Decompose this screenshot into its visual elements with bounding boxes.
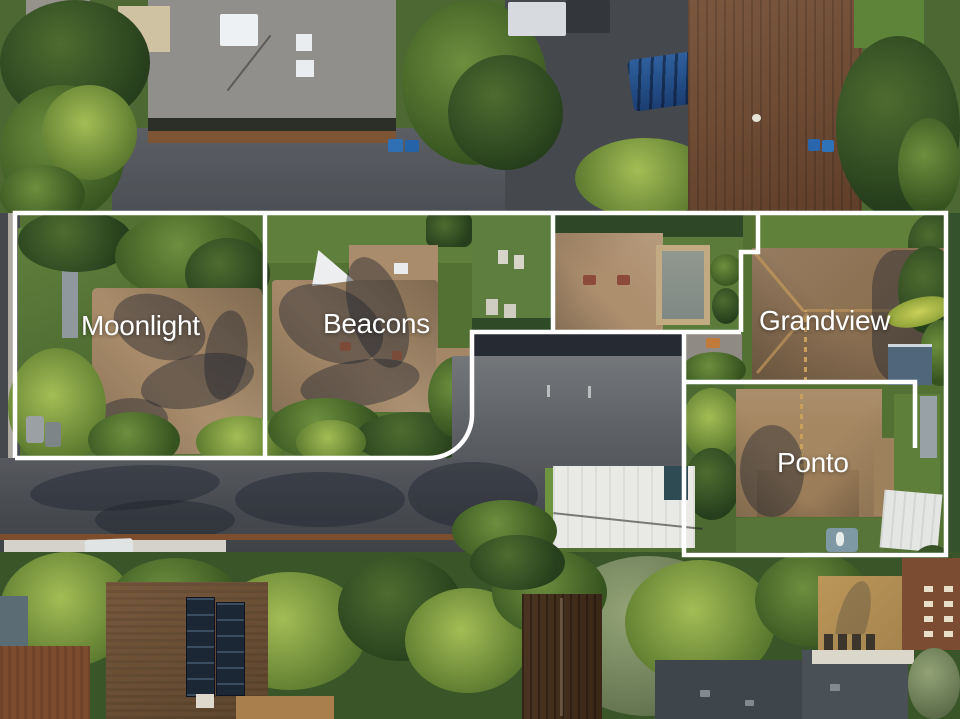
dark-van bbox=[566, 0, 610, 33]
solar-panel-array bbox=[186, 597, 215, 697]
building-windows bbox=[944, 586, 953, 644]
concrete-pad bbox=[486, 299, 498, 315]
lap-pool bbox=[662, 251, 704, 319]
roof-skylight bbox=[394, 263, 408, 274]
concrete-pad bbox=[498, 250, 508, 264]
parcel-label-moonlight: Moonlight bbox=[81, 310, 200, 342]
roof-vent bbox=[830, 684, 840, 691]
aerial-parcel-map: Moonlight Beacons Grandview Ponto bbox=[0, 0, 960, 719]
ponto-south-lawn bbox=[736, 518, 884, 554]
conifer-tree bbox=[908, 648, 960, 719]
patio-furniture bbox=[706, 338, 720, 348]
right-margin-trees bbox=[946, 213, 960, 555]
tree-canopy bbox=[448, 55, 563, 170]
dark-structure bbox=[664, 466, 688, 500]
blue-shed bbox=[888, 344, 932, 385]
recycle-bin bbox=[822, 140, 834, 152]
recycle-bin bbox=[808, 139, 820, 151]
white-truck bbox=[508, 2, 566, 36]
skylight bbox=[196, 694, 214, 708]
tree-canopy bbox=[682, 352, 746, 388]
tree-canopy bbox=[470, 535, 565, 590]
tree-canopy bbox=[898, 118, 960, 216]
storefront-windows bbox=[824, 634, 876, 651]
solar-panel-array bbox=[216, 602, 245, 696]
side-path bbox=[920, 396, 937, 458]
chimney bbox=[617, 275, 630, 285]
roof-vent bbox=[700, 690, 710, 697]
chimney bbox=[583, 275, 596, 285]
middle-house-roof bbox=[551, 233, 663, 334]
parked-car bbox=[45, 422, 61, 447]
gable-ridge bbox=[560, 598, 563, 716]
parcel-label-grandview: Grandview bbox=[759, 305, 890, 337]
parcel-label-beacons: Beacons bbox=[323, 308, 430, 340]
parcel-label-ponto: Ponto bbox=[777, 447, 849, 479]
parked-car bbox=[26, 416, 44, 443]
concrete-pad bbox=[514, 255, 524, 269]
tree-canopy bbox=[426, 213, 472, 247]
hedge bbox=[472, 318, 553, 335]
building-windows bbox=[924, 586, 933, 644]
slate-roof bbox=[655, 660, 805, 719]
wood-fence bbox=[148, 131, 396, 143]
bush bbox=[710, 254, 742, 286]
tree-shadow bbox=[235, 472, 405, 527]
parking-line bbox=[588, 386, 591, 398]
skylight bbox=[296, 34, 312, 51]
brown-shingle-house bbox=[688, 0, 862, 213]
white-trailer bbox=[880, 490, 943, 553]
recycle-bin bbox=[388, 139, 403, 152]
chimney bbox=[340, 342, 351, 351]
grey-roof-house bbox=[148, 0, 396, 126]
bush bbox=[712, 288, 740, 324]
skylight bbox=[220, 14, 258, 46]
aerial-photo bbox=[0, 0, 960, 719]
roof-vent bbox=[745, 700, 754, 706]
parking-line bbox=[547, 385, 550, 397]
recycle-bin bbox=[405, 140, 419, 152]
corner-roof bbox=[0, 646, 90, 719]
skylight bbox=[296, 60, 314, 77]
chimney bbox=[392, 351, 402, 360]
terracotta-roof-strip bbox=[236, 696, 334, 719]
white-walkway bbox=[812, 650, 914, 664]
roof-vent bbox=[752, 114, 761, 122]
pool-slide bbox=[836, 532, 844, 546]
